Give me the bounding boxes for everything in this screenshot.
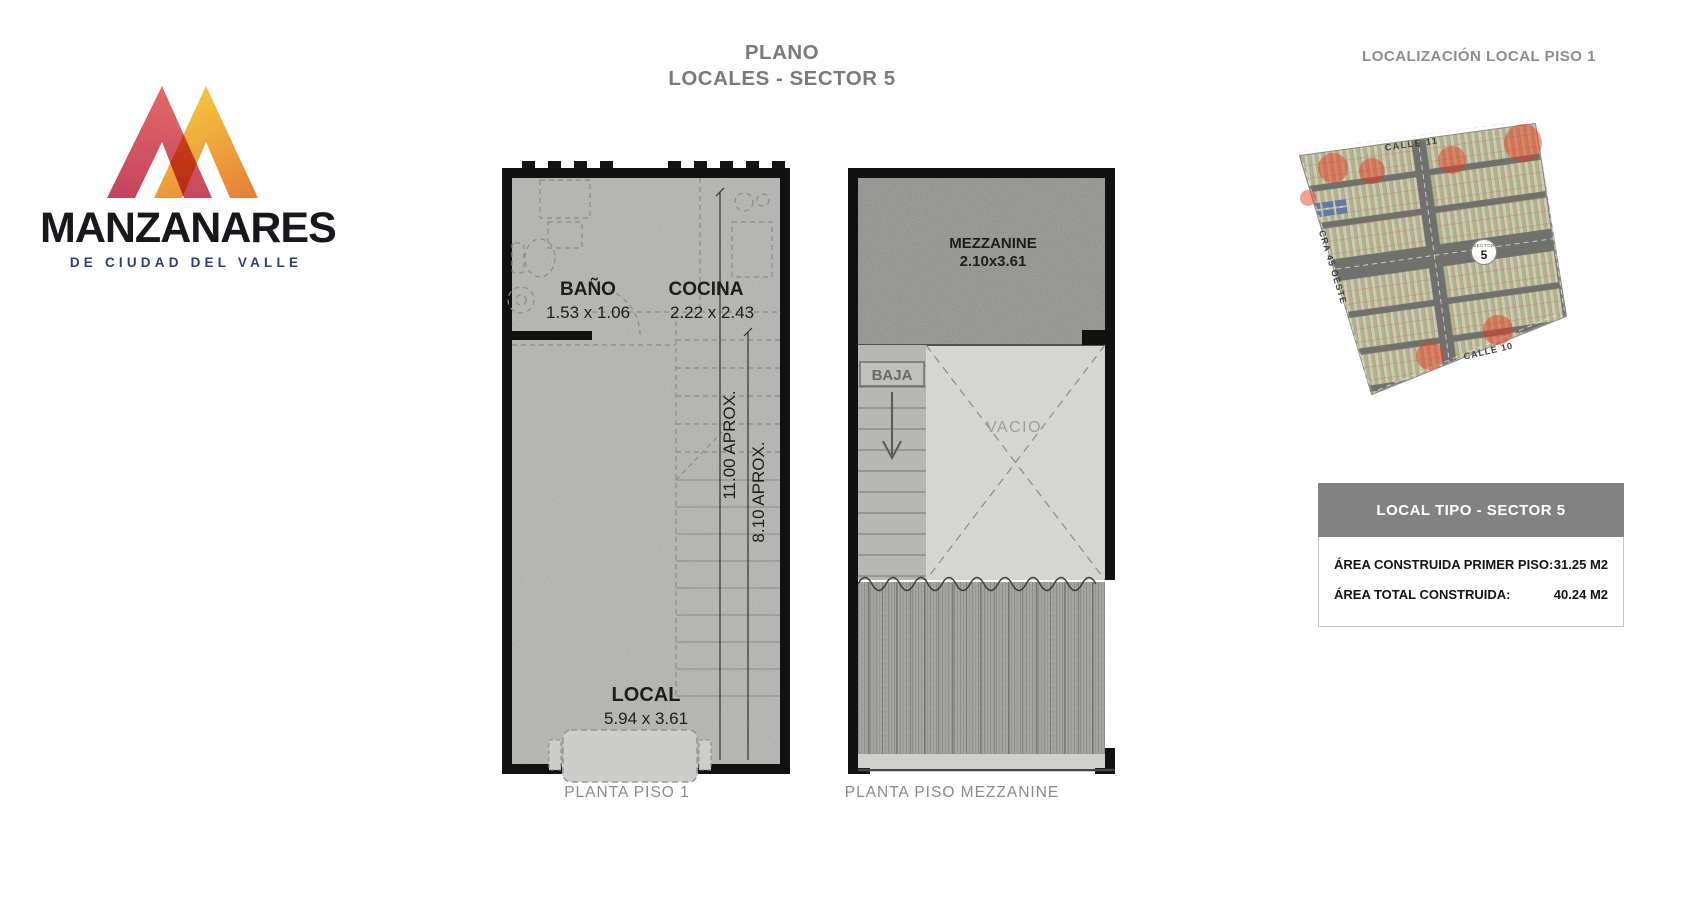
dimension-total-label: 11.00 APROX. — [720, 390, 739, 499]
piso1-caption: PLANTA PISO 1 — [477, 784, 777, 802]
sector-badge-number: 5 — [1481, 248, 1488, 262]
roof-hatch-accent — [858, 582, 1105, 754]
info-row-value: 31.25 M2 — [1554, 557, 1608, 572]
stairs-down-label: BAJA — [872, 367, 913, 384]
mezzanine-caption: PLANTA PISO MEZZANINE — [802, 784, 1102, 802]
piso1-top-wall-ticks — [522, 161, 785, 168]
kitchen-dims: 2.22 x 2.43 — [670, 303, 754, 322]
sheet-title: PLANO LOCALES - SECTOR 5 — [610, 40, 954, 92]
brand-name: MANZANARES — [40, 204, 332, 253]
mezzanine-label: MEZZANINE — [949, 235, 1037, 252]
floor-plan-piso1-drawing: BAÑO 1.53 x 1.06 COCINA 2.22 x 2.43 LOCA… — [490, 150, 810, 810]
info-row-first-floor: ÁREA CONSTRUIDA PRIMER PISO: 31.25 M2 — [1334, 557, 1608, 572]
info-row-label: ÁREA TOTAL CONSTRUIDA: — [1334, 587, 1510, 602]
sheet-title-line2: LOCALES - SECTOR 5 — [610, 66, 954, 92]
bath-label: BAÑO — [560, 278, 616, 300]
location-map: SECTOR 5 CALLE 11 CRA 45 OESTE CALLE 10 — [1240, 95, 1580, 405]
void-label: VACIO — [986, 419, 1042, 436]
sheet-title-line1: PLANO — [610, 40, 954, 66]
map-title: LOCALIZACIÓN LOCAL PISO 1 — [1318, 48, 1640, 65]
sector-badge: SECTOR 5 — [1472, 240, 1497, 265]
brand-tagline: DE CIUDAD DEL VALLE — [28, 255, 344, 270]
manzanares-logo-icon — [105, 84, 261, 202]
local-label: LOCAL — [612, 684, 681, 706]
info-row-label: ÁREA CONSTRUIDA PRIMER PISO: — [1334, 557, 1553, 572]
info-box-header: LOCAL TIPO - SECTOR 5 — [1318, 483, 1624, 537]
info-row-total: ÁREA TOTAL CONSTRUIDA: 40.24 M2 — [1334, 587, 1608, 602]
local-dims: 5.94 x 3.61 — [604, 709, 688, 728]
piso1-entrance-door — [549, 730, 711, 782]
bath-dims: 1.53 x 1.06 — [546, 303, 630, 322]
dimension-partial-label: 8.10 APROX. — [749, 441, 768, 542]
piso1-bath-wall — [502, 331, 592, 340]
kitchen-label: COCINA — [669, 279, 744, 300]
floor-plan-mezzanine-drawing: BAJA VACIO MEZZANINE 2.10x3.61 — [838, 150, 1138, 810]
info-row-value: 40.24 M2 — [1554, 587, 1608, 602]
mezzanine-dims: 2.10x3.61 — [960, 253, 1027, 270]
plan-sheet-page: MANZANARES DE CIUDAD DEL VALLE PLANO LOC… — [0, 0, 1701, 900]
local-info-box: LOCAL TIPO - SECTOR 5 ÁREA CONSTRUIDA PR… — [1318, 483, 1624, 627]
info-box-body: ÁREA CONSTRUIDA PRIMER PISO: 31.25 M2 ÁR… — [1318, 537, 1624, 627]
roof-bottom-strip — [858, 754, 1105, 768]
